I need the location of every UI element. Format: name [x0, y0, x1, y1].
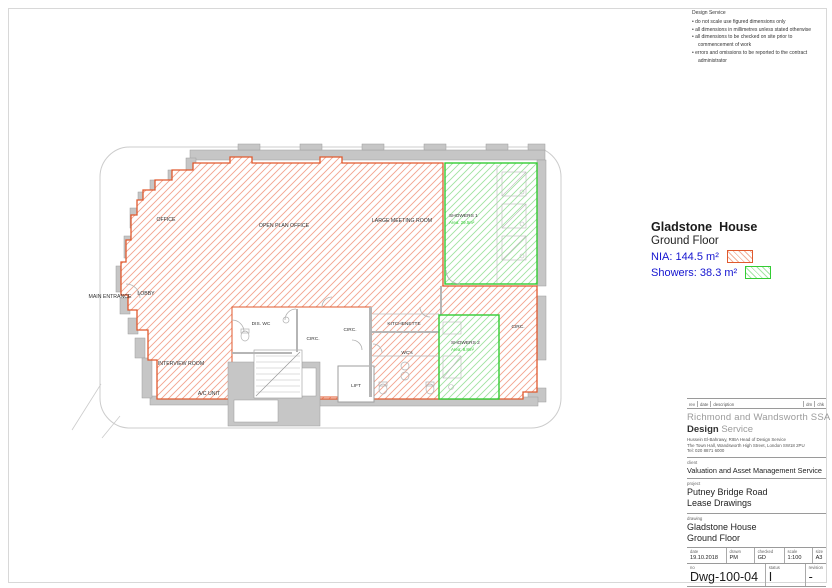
- legend-showers-label: Showers: 38.3 m²: [651, 267, 737, 279]
- label-lobby: LOBBY: [137, 291, 155, 297]
- size-value: A3: [816, 555, 823, 561]
- label-office: OFFICE: [156, 217, 176, 223]
- scale-value: 1:100: [788, 555, 809, 561]
- project-name-line: Putney Bridge Road: [687, 487, 826, 498]
- drawn-value: PM: [730, 555, 751, 561]
- revision-table-header: rev date description drn chk: [687, 398, 826, 409]
- legend: Gladstone House Ground Floor NIA: 144.5 …: [651, 220, 827, 279]
- chk-col-label: chk: [814, 401, 826, 407]
- showers2-area: [439, 315, 499, 399]
- scale-label: scale: [788, 549, 809, 554]
- agency-address-line: Tel: 020 8871 6000: [687, 448, 826, 454]
- description-col-label: description: [710, 401, 803, 407]
- rev-col-label: rev: [687, 401, 697, 407]
- legend-nia-label: NIA: 144.5 m²: [651, 251, 719, 263]
- note-item: all dimensions in millimetres unless sta…: [692, 27, 828, 35]
- label-showers1-area: Area: 29.5m²: [449, 220, 475, 225]
- agency-service: Design Service: [687, 424, 826, 435]
- note-item: errors and omissions to be reported to t…: [692, 50, 828, 66]
- drawn-label: drawn: [730, 549, 751, 554]
- drawing-name-line: Gladstone House: [687, 522, 826, 533]
- label-wcs: WC's: [401, 350, 413, 356]
- drawing-label: drawing: [687, 514, 826, 521]
- date-value: 19.10.2018: [690, 555, 723, 561]
- label-open-plan-office: OPEN PLAN OFFICE: [259, 223, 310, 229]
- label-interview-room: INTERVIEW ROOM: [158, 361, 204, 367]
- label-kitchenette: KITCHENETTE: [387, 321, 420, 327]
- drawing-name-line: Ground Floor: [687, 533, 826, 544]
- project-name-line: Lease Drawings: [687, 498, 826, 509]
- label-lift: LIFT: [351, 383, 361, 389]
- note-item: all dimensions to be checked on site pri…: [692, 34, 828, 50]
- note-item: do not scale use figured dimensions only: [692, 19, 828, 27]
- meta-row: date 19.10.2018 drawn PM checked GD scal…: [687, 547, 826, 563]
- client-label: client: [687, 458, 826, 465]
- label-circ-right: CIRC.: [511, 324, 524, 330]
- label-dis-wc: DIS. WC: [252, 321, 271, 327]
- agency-block: Richmond and Wandsworth SSA Design Servi…: [687, 409, 826, 457]
- label-main-entrance: MAIN ENTRANCE: [89, 294, 132, 300]
- label-showers2-area: Area: 8.8m²: [451, 347, 474, 352]
- title-block: rev date description drn chk Richmond an…: [687, 396, 826, 587]
- size-label: size: [816, 549, 823, 554]
- date-label: date: [690, 549, 723, 554]
- drawing-no-value: Dwg-100-04: [690, 570, 762, 584]
- checked-label: checked: [758, 549, 781, 554]
- label-circ-core1: CIRC.: [306, 336, 319, 342]
- notes-panel: Design Service do not scale use figured …: [692, 10, 828, 65]
- nia-hatch-swatch: [727, 250, 753, 263]
- label-circ-core2: CIRC.: [343, 327, 356, 333]
- status-value: I: [769, 570, 802, 584]
- legend-floor-title: Ground Floor: [651, 235, 827, 247]
- client-name: Valuation and Asset Management Service: [687, 465, 826, 478]
- checked-value: GD: [758, 555, 781, 561]
- label-showers1-name: SHOWERS 1: [449, 213, 478, 219]
- agency-name: Richmond and Wandsworth SSA: [687, 412, 826, 423]
- agency-design: Design: [687, 424, 719, 435]
- label-ac-unit: A/C UNIT: [198, 391, 221, 397]
- project-label: project: [687, 479, 826, 486]
- notes-title: Design Service: [692, 10, 828, 18]
- showers-hatch-swatch: [745, 266, 771, 279]
- revision-value: -: [809, 570, 823, 584]
- legend-building-title: Gladstone House: [651, 220, 827, 234]
- agency-service-word: Service: [719, 424, 753, 435]
- date-col-label: date: [697, 401, 710, 407]
- number-row: no Dwg-100-04 status I revision -: [687, 563, 826, 587]
- label-showers2-name: SHOWERS 2: [451, 340, 480, 346]
- drn-col-label: drn: [803, 401, 814, 407]
- label-large-meeting-room: LARGE MEETING ROOM: [372, 218, 432, 224]
